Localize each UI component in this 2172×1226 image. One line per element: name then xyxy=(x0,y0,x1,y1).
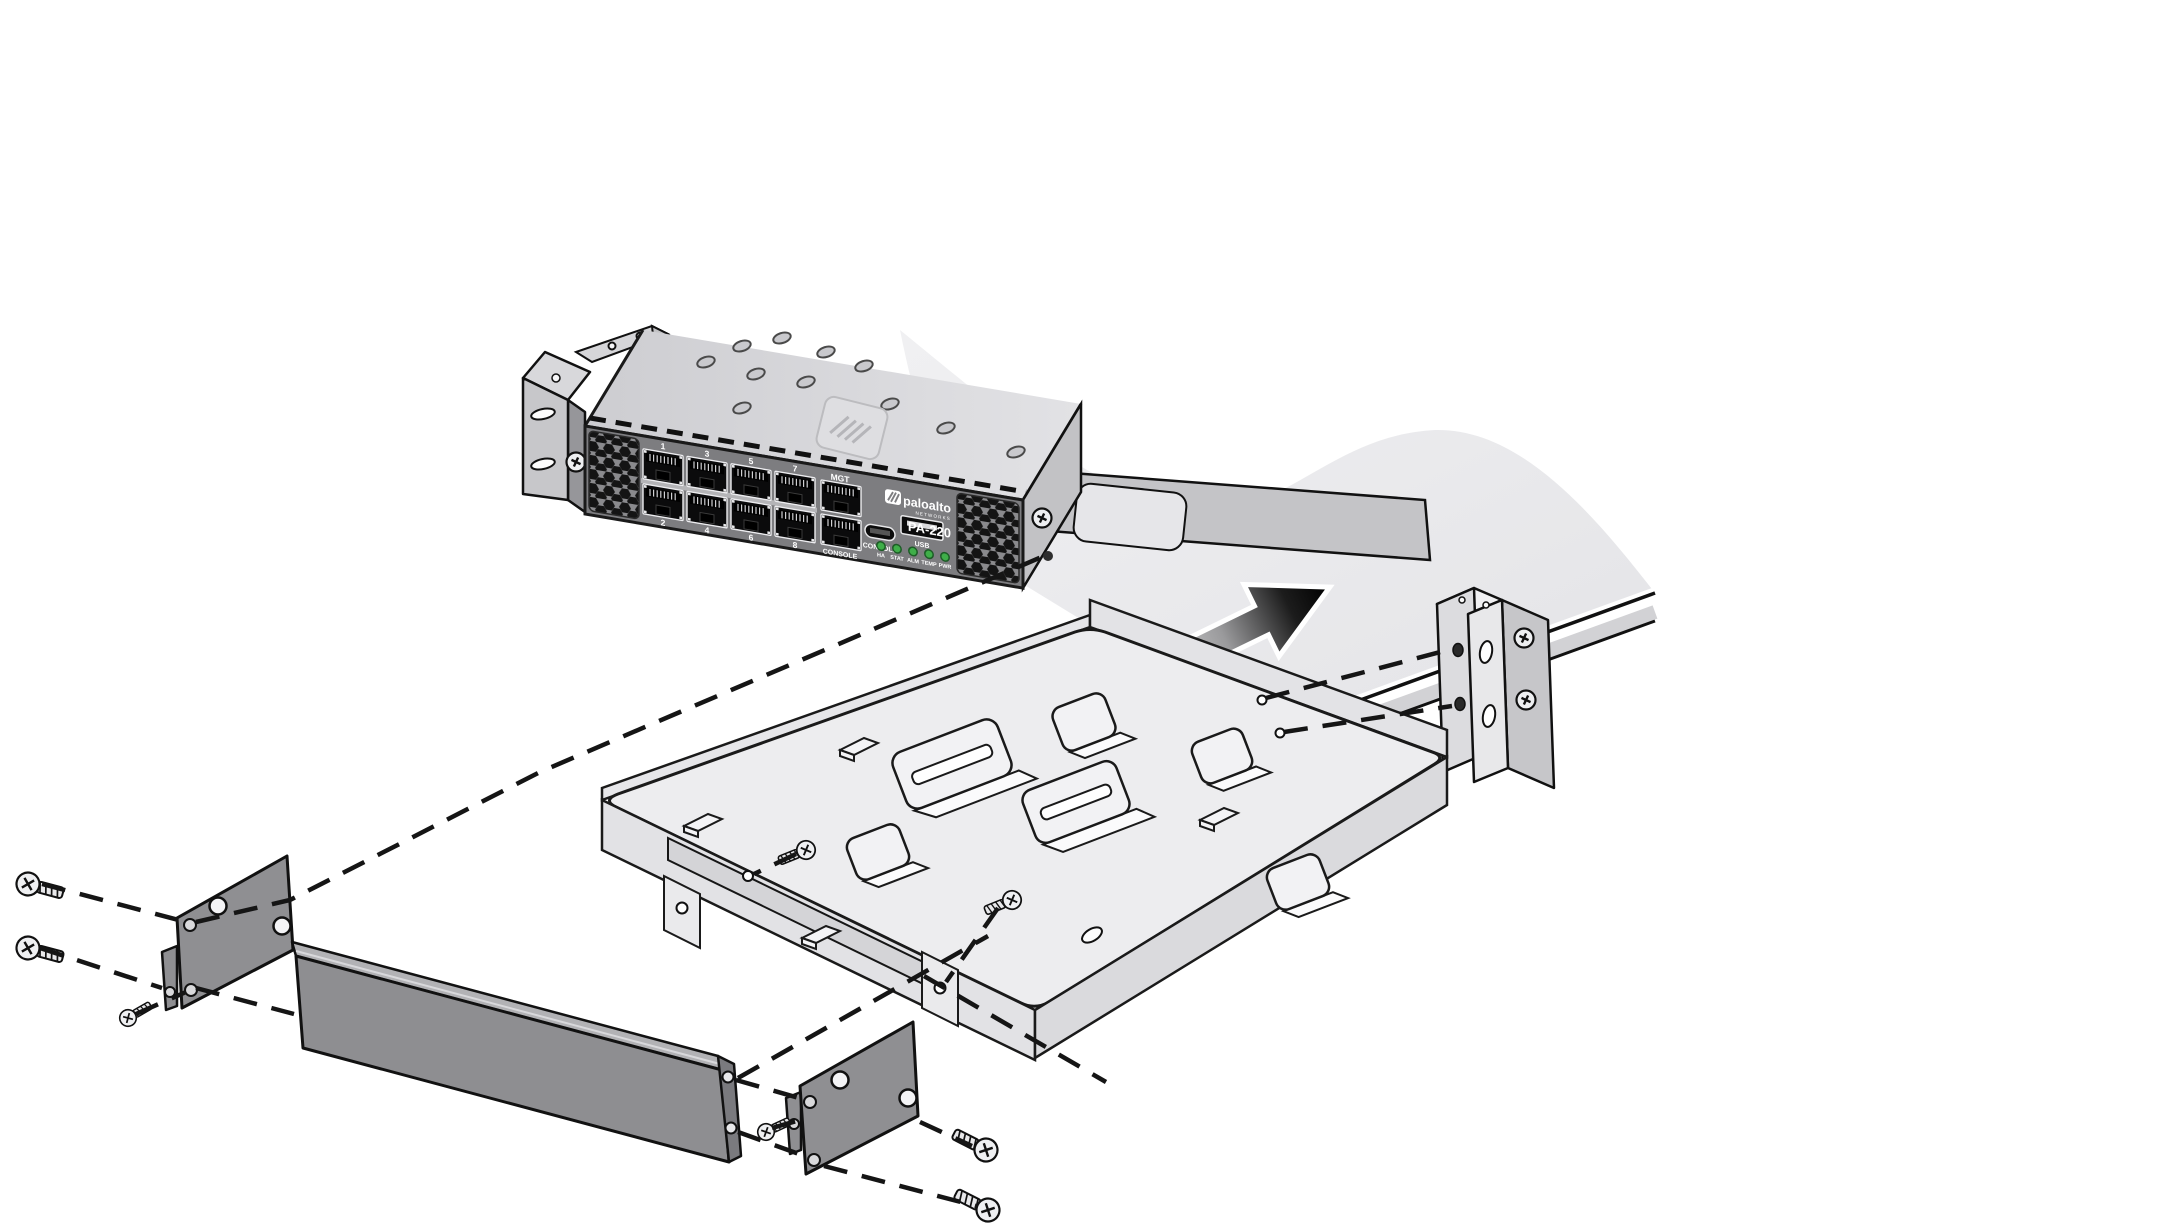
port-number: 1 xyxy=(661,441,666,452)
right-rack-bracket xyxy=(1437,588,1554,788)
plate-hole xyxy=(210,898,227,915)
plate-hole xyxy=(832,1072,849,1089)
left-rack-ear xyxy=(523,352,590,512)
port-number: 4 xyxy=(705,525,710,536)
plate-hole xyxy=(274,918,291,935)
screw-icon xyxy=(14,934,66,969)
plate-screw-hole xyxy=(804,1096,816,1108)
plate-hole xyxy=(900,1090,917,1107)
led-stat xyxy=(893,544,901,554)
panel-end-hole xyxy=(723,1072,734,1083)
left-vent-grille xyxy=(589,431,639,519)
end-cap-screw-icon xyxy=(1033,509,1052,528)
screw-icon xyxy=(949,1123,1002,1165)
port-number: 5 xyxy=(749,456,754,467)
tray-screw-hole xyxy=(1276,729,1285,738)
plate-screw-hole xyxy=(185,984,197,996)
port-number: 6 xyxy=(749,532,754,543)
tray-screw-hole xyxy=(677,903,688,914)
port-number: 8 xyxy=(793,540,798,551)
console-rj45-port xyxy=(821,514,861,551)
screw-icon xyxy=(117,998,155,1029)
tray-screw-hole xyxy=(743,871,753,881)
led-temp xyxy=(925,549,933,559)
right-side-plate xyxy=(786,1022,918,1174)
port-number: 3 xyxy=(705,448,710,459)
end-cap-hole xyxy=(1043,551,1053,561)
plate-screw-hole xyxy=(808,1154,820,1166)
plate-screw-hole xyxy=(184,919,196,931)
led-ha xyxy=(877,541,885,551)
right-vent-grille xyxy=(957,493,1019,583)
left-side-plate xyxy=(162,856,293,1010)
led-alm xyxy=(909,547,917,557)
led-pwr xyxy=(941,552,949,562)
bracket-screw-icon xyxy=(1517,691,1536,710)
ear-screw-icon xyxy=(567,453,586,472)
port-number: 2 xyxy=(661,517,666,528)
blank-front-panel xyxy=(292,942,741,1162)
port-number: 7 xyxy=(793,463,798,474)
screw-icon xyxy=(951,1183,1004,1225)
mgt-port xyxy=(821,480,861,517)
pa-220-device: 1 3 5 7 2 4 6 8 MGT CONSOLE CONSOLE USB xyxy=(523,326,1081,589)
tray-screw-hole xyxy=(1258,696,1267,705)
panel-end-hole xyxy=(726,1123,737,1134)
bracket-screw-icon xyxy=(1515,629,1534,648)
installation-diagram: 1 3 5 7 2 4 6 8 MGT CONSOLE CONSOLE USB xyxy=(0,0,2172,1226)
diagram-canvas: 1 3 5 7 2 4 6 8 MGT CONSOLE CONSOLE USB xyxy=(0,0,2172,1226)
